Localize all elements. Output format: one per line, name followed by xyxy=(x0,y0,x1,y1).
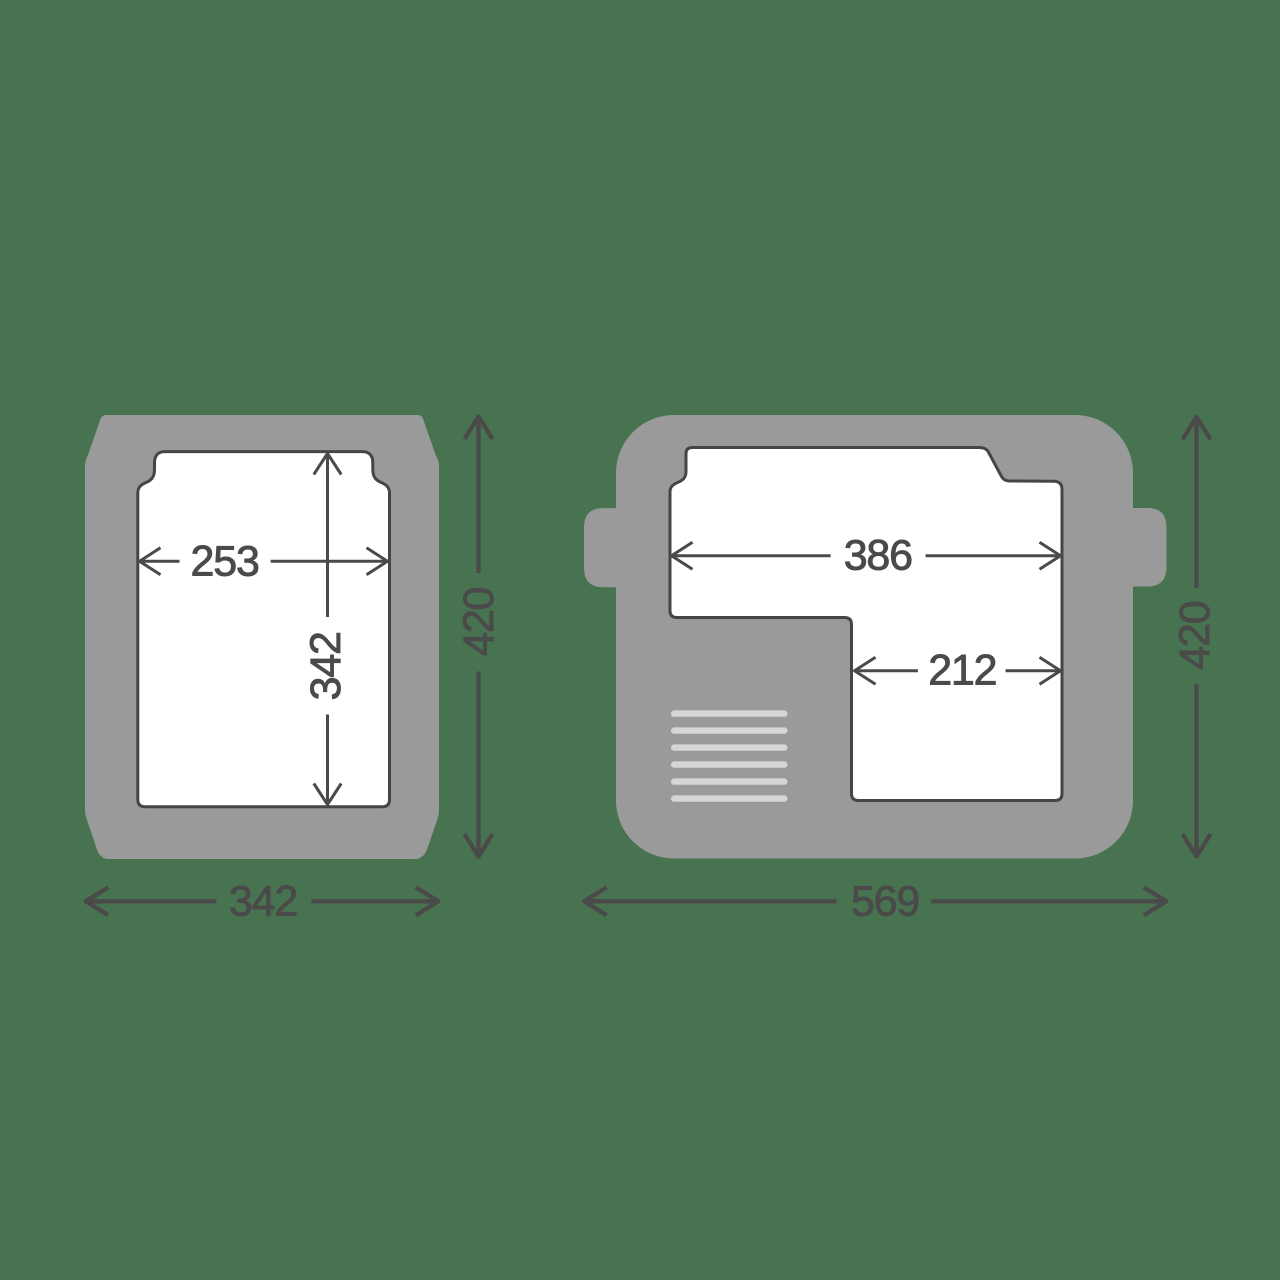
svg-text:569: 569 xyxy=(851,877,919,925)
svg-text:420: 420 xyxy=(455,587,503,655)
svg-text:253: 253 xyxy=(191,537,259,585)
svg-text:342: 342 xyxy=(302,632,350,700)
svg-text:420: 420 xyxy=(1171,601,1219,669)
svg-text:212: 212 xyxy=(928,647,996,695)
svg-text:342: 342 xyxy=(229,877,297,925)
svg-text:386: 386 xyxy=(844,532,912,580)
